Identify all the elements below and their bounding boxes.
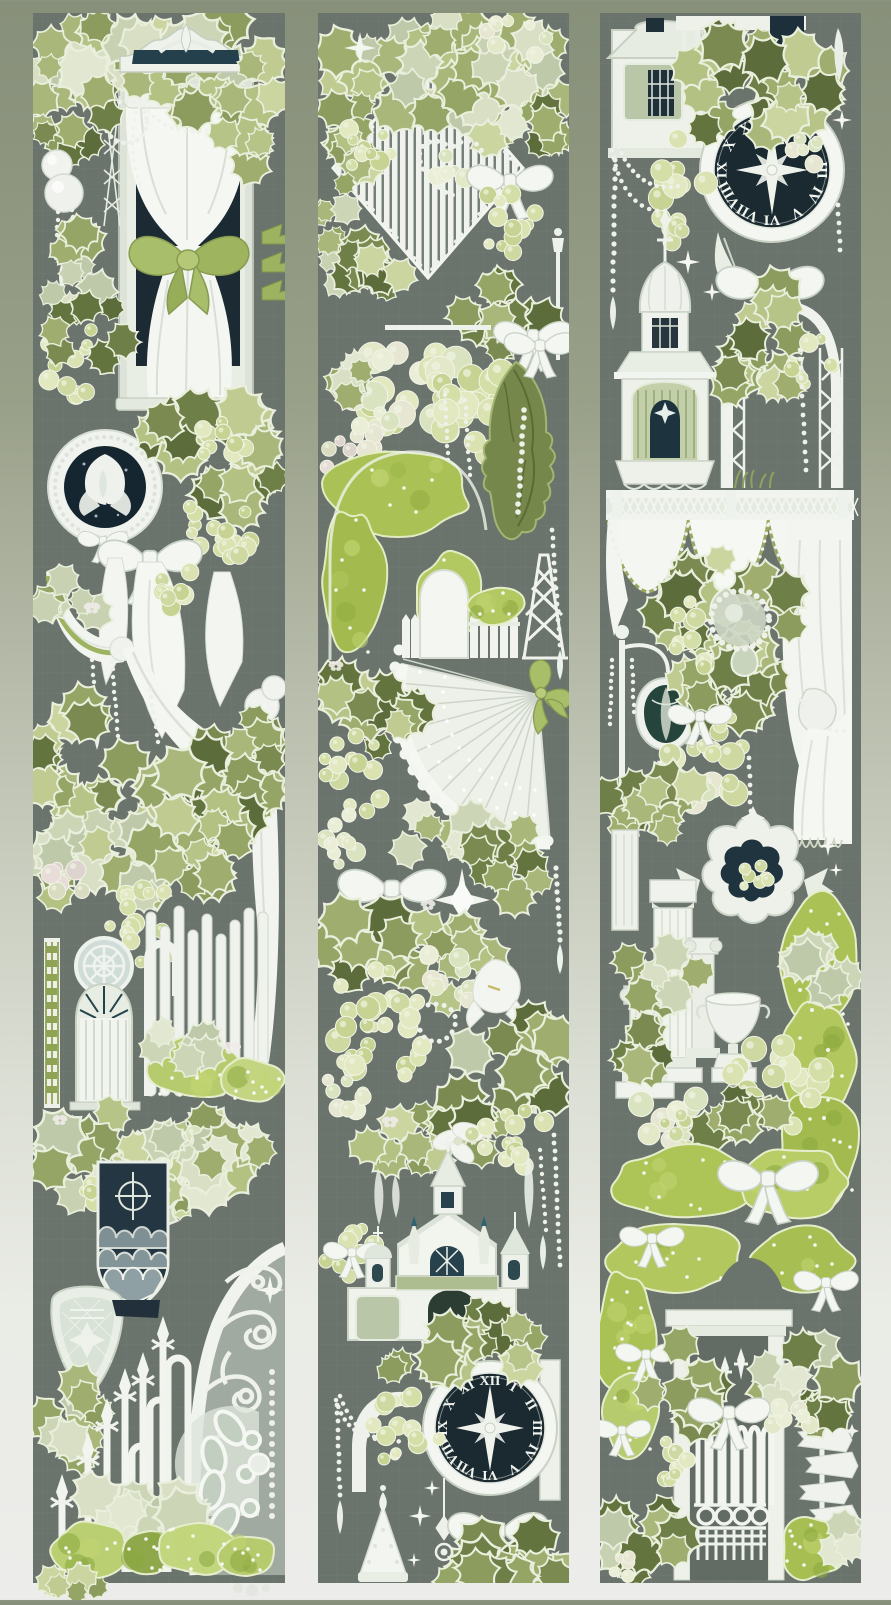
- svg-text:III: III: [529, 1420, 544, 1436]
- svg-text:IX: IX: [714, 161, 730, 178]
